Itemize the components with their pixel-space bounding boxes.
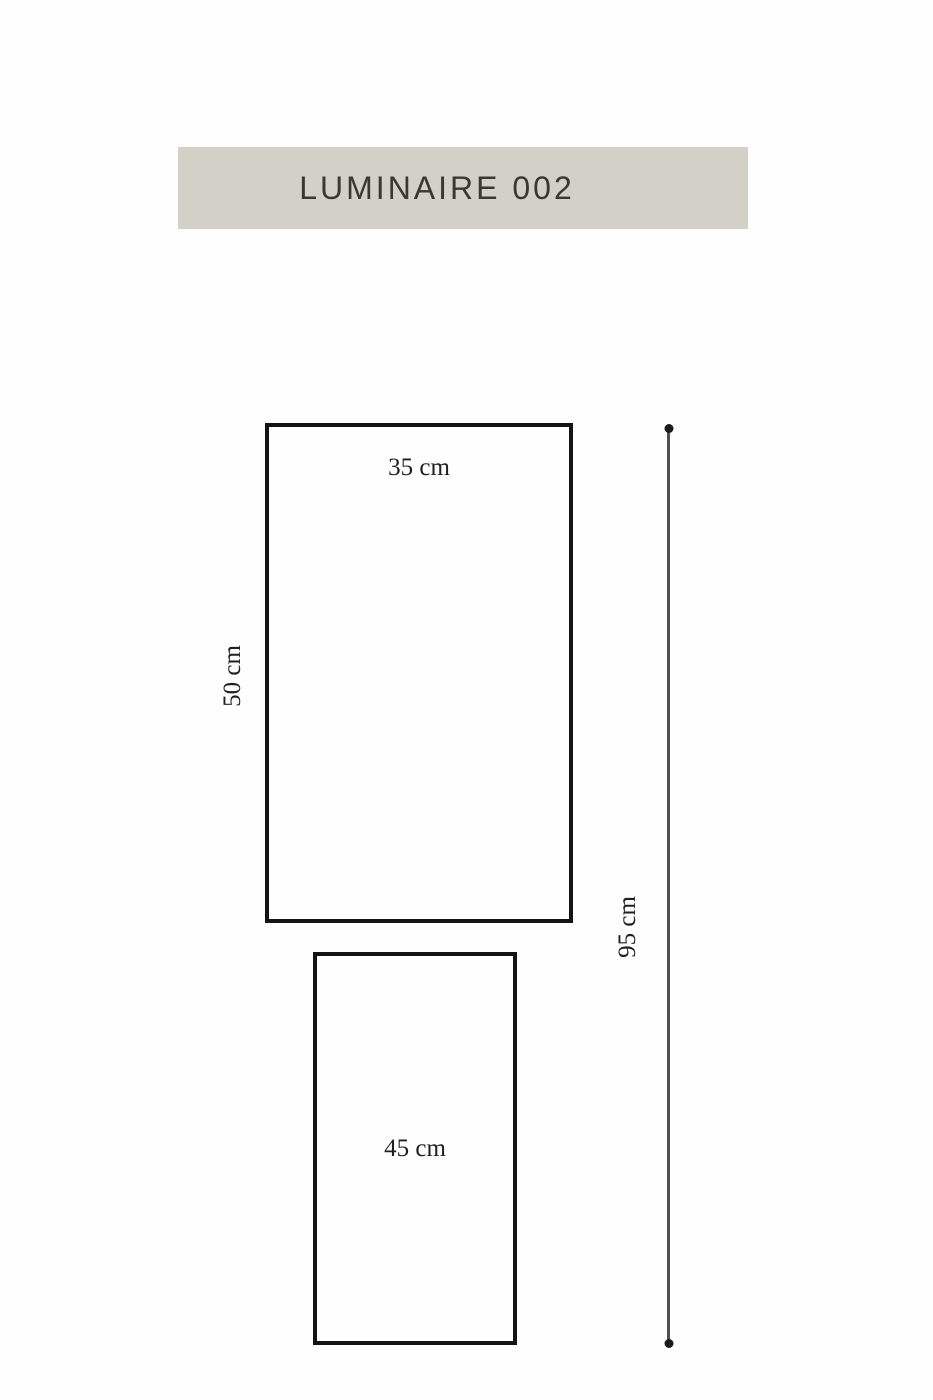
dimension-end-bottom-icon xyxy=(664,1339,673,1348)
lower-shade-outline: 45 cm xyxy=(313,952,517,1345)
page-title: LUMINAIRE 002 xyxy=(299,170,575,207)
dimension-end-top-icon xyxy=(664,424,673,433)
upper-width-label: 35 cm xyxy=(269,454,569,482)
upper-height-label: 50 cm xyxy=(219,645,247,707)
total-height-label: 95 cm xyxy=(614,896,642,958)
upper-shade-outline: 35 cm xyxy=(265,423,573,923)
title-banner: LUMINAIRE 002 xyxy=(178,147,748,229)
diagram-page: LUMINAIRE 002 35 cm 50 cm 45 cm 95 cm xyxy=(0,0,933,1400)
lower-size-label: 45 cm xyxy=(384,1135,446,1163)
total-height-dimension-line xyxy=(667,427,670,1345)
